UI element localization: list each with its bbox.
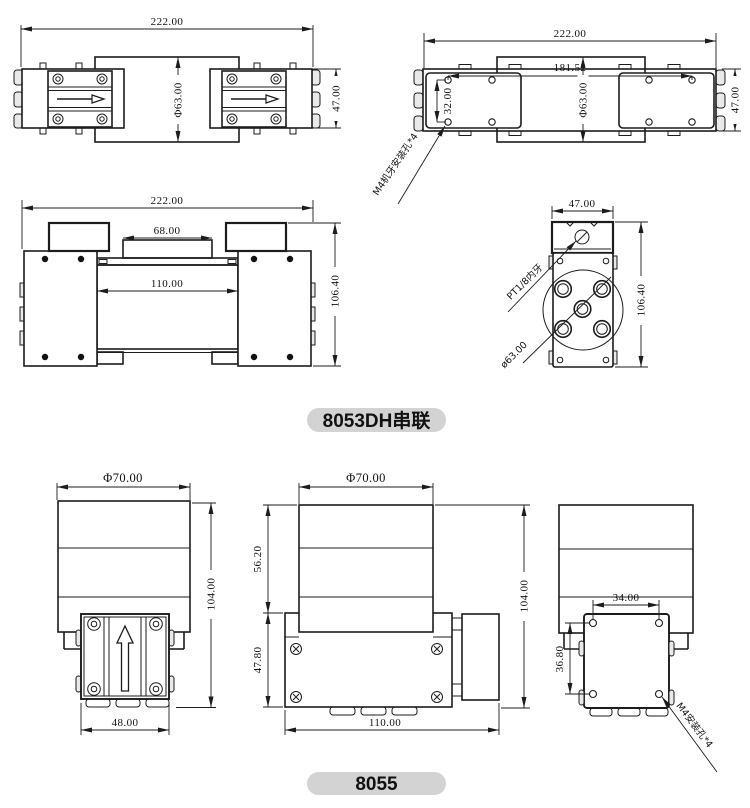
dim-8055-hole-span-height: 36.80 — [554, 646, 566, 673]
view-8053-side: 47.00 106.40 PT1/8内牙 ø63.00 — [499, 198, 648, 371]
view-8055-front: Φ70.00 104.00 48.00 — [57, 471, 218, 735]
valve-box — [462, 614, 499, 700]
section-title-label: 8055 — [355, 774, 398, 795]
view-8053-top: 222.00 Φ63.00 47.00 — [14, 16, 343, 142]
dim-8055-head-width: 48.00 — [112, 717, 139, 729]
dim-bottom-motor-diameter: Φ63.00 — [578, 82, 590, 117]
dim-8055-body-width: 110.00 — [369, 717, 401, 729]
dim-bottom-hole-span: 181.52 — [554, 62, 587, 74]
dim-8055-front-diameter: Φ70.00 — [103, 471, 143, 485]
dim-top-motor-diameter: Φ63.00 — [173, 82, 185, 117]
dim-front-top-width: 68.00 — [154, 225, 181, 237]
dim-side-height: 106.40 — [636, 284, 648, 317]
dim-8055-motor-height: 56.20 — [252, 546, 264, 573]
dim-front-body-width: 110.00 — [151, 278, 183, 290]
dim-8055-front-height: 104.00 — [206, 578, 218, 611]
dim-8055-body-height: 47.80 — [252, 647, 264, 674]
dim-side-width: 47.00 — [569, 198, 596, 210]
view-8053-front: 222.00 68.00 110.00 106.40 — [20, 195, 342, 366]
dim-8055-side-height: 104.00 — [519, 580, 531, 613]
dim-bottom-hole-offset: 32.00 — [442, 88, 454, 115]
dim-top-head-height: 47.00 — [331, 85, 343, 112]
motor-body — [58, 501, 190, 632]
callout-pt18-port: PT1/8内牙 — [504, 261, 545, 302]
dim-8055-side-diameter: Φ70.00 — [346, 471, 386, 485]
view-8055-side: Φ70.00 56.20 47.80 104.00 110.00 — [252, 471, 531, 735]
section-title-label: 8053DH串联 — [323, 410, 431, 432]
callout-m4-mount-holes: M4安装孔*4 — [673, 700, 715, 750]
section-title-8055: 8055 — [307, 772, 446, 795]
drawing-sheet: 222.00 Φ63.00 47.00 222.00 18 — [0, 0, 750, 808]
dim-8055-hole-span-width: 34.00 — [613, 592, 640, 604]
view-8053-bottom: 222.00 181.52 Φ63.00 32.00 47.00 M4机牙安装孔… — [370, 28, 741, 204]
dim-bottom-overall-width: 222.00 — [554, 28, 587, 40]
callout-diameter-63: ø63.00 — [499, 340, 530, 371]
drawing-canvas: 222.00 Φ63.00 47.00 222.00 18 — [0, 0, 750, 808]
dim-front-overall-height: 106.40 — [330, 275, 342, 308]
callout-m4-thread-holes: M4机牙安装孔*4 — [370, 131, 421, 198]
motor-body — [299, 505, 433, 632]
dim-front-overall-width: 222.00 — [151, 195, 184, 207]
dim-bottom-body-height: 47.00 — [730, 87, 742, 114]
view-8055-rear: 34.00 36.80 M4安装孔*4 — [554, 505, 717, 772]
section-title-8053dh: 8053DH串联 — [307, 408, 446, 432]
dim-top-overall-width: 222.00 — [151, 16, 184, 28]
